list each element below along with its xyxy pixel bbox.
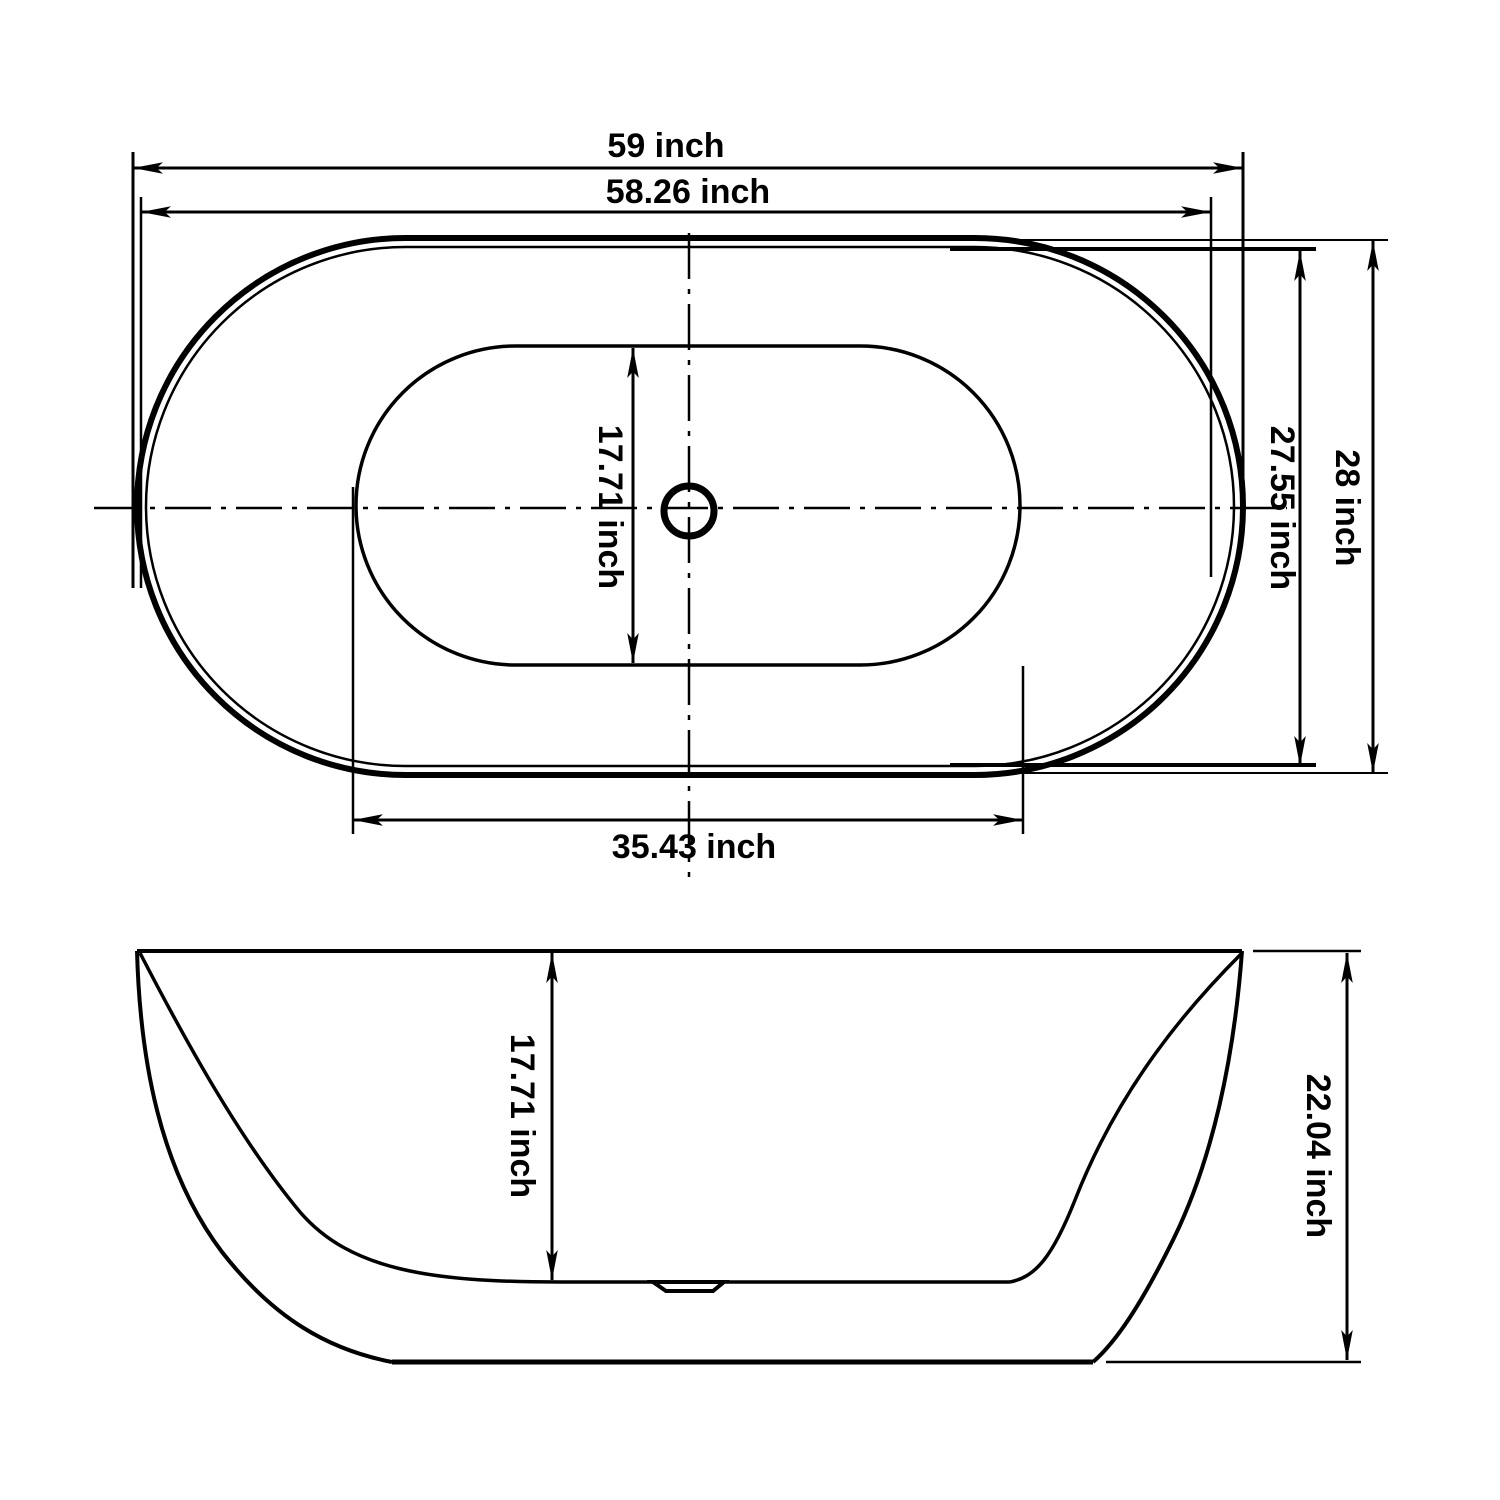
side-outer-wall-left <box>137 951 392 1362</box>
side-outer-wall-right <box>1093 951 1242 1362</box>
dim-label-rim-inner-length: 58.26 inch <box>606 173 770 211</box>
bathtub-dimension-drawing: 59 inch 58.26 inch 35.43 inch 27.55 inch… <box>0 0 1500 1500</box>
dim-label-overall-width: 28 inch <box>1328 449 1366 566</box>
dim-label-basin-width: 17.71 inch <box>591 425 629 589</box>
side-inner-wall-right <box>1010 953 1242 1282</box>
dim-label-rim-inner-width: 27.55 inch <box>1263 426 1301 590</box>
side-inner-wall-left <box>140 953 560 1282</box>
dim-label-basin-length: 35.43 inch <box>612 828 776 866</box>
dim-label-overall-height: 22.04 inch <box>1299 1074 1337 1238</box>
drawing-sheet: 59 inch 58.26 inch 35.43 inch 27.55 inch… <box>0 0 1500 1500</box>
side-drain-plug <box>653 1282 724 1291</box>
dim-label-overall-length: 59 inch <box>607 127 724 165</box>
dim-label-inner-depth: 17.71 inch <box>503 1034 541 1198</box>
